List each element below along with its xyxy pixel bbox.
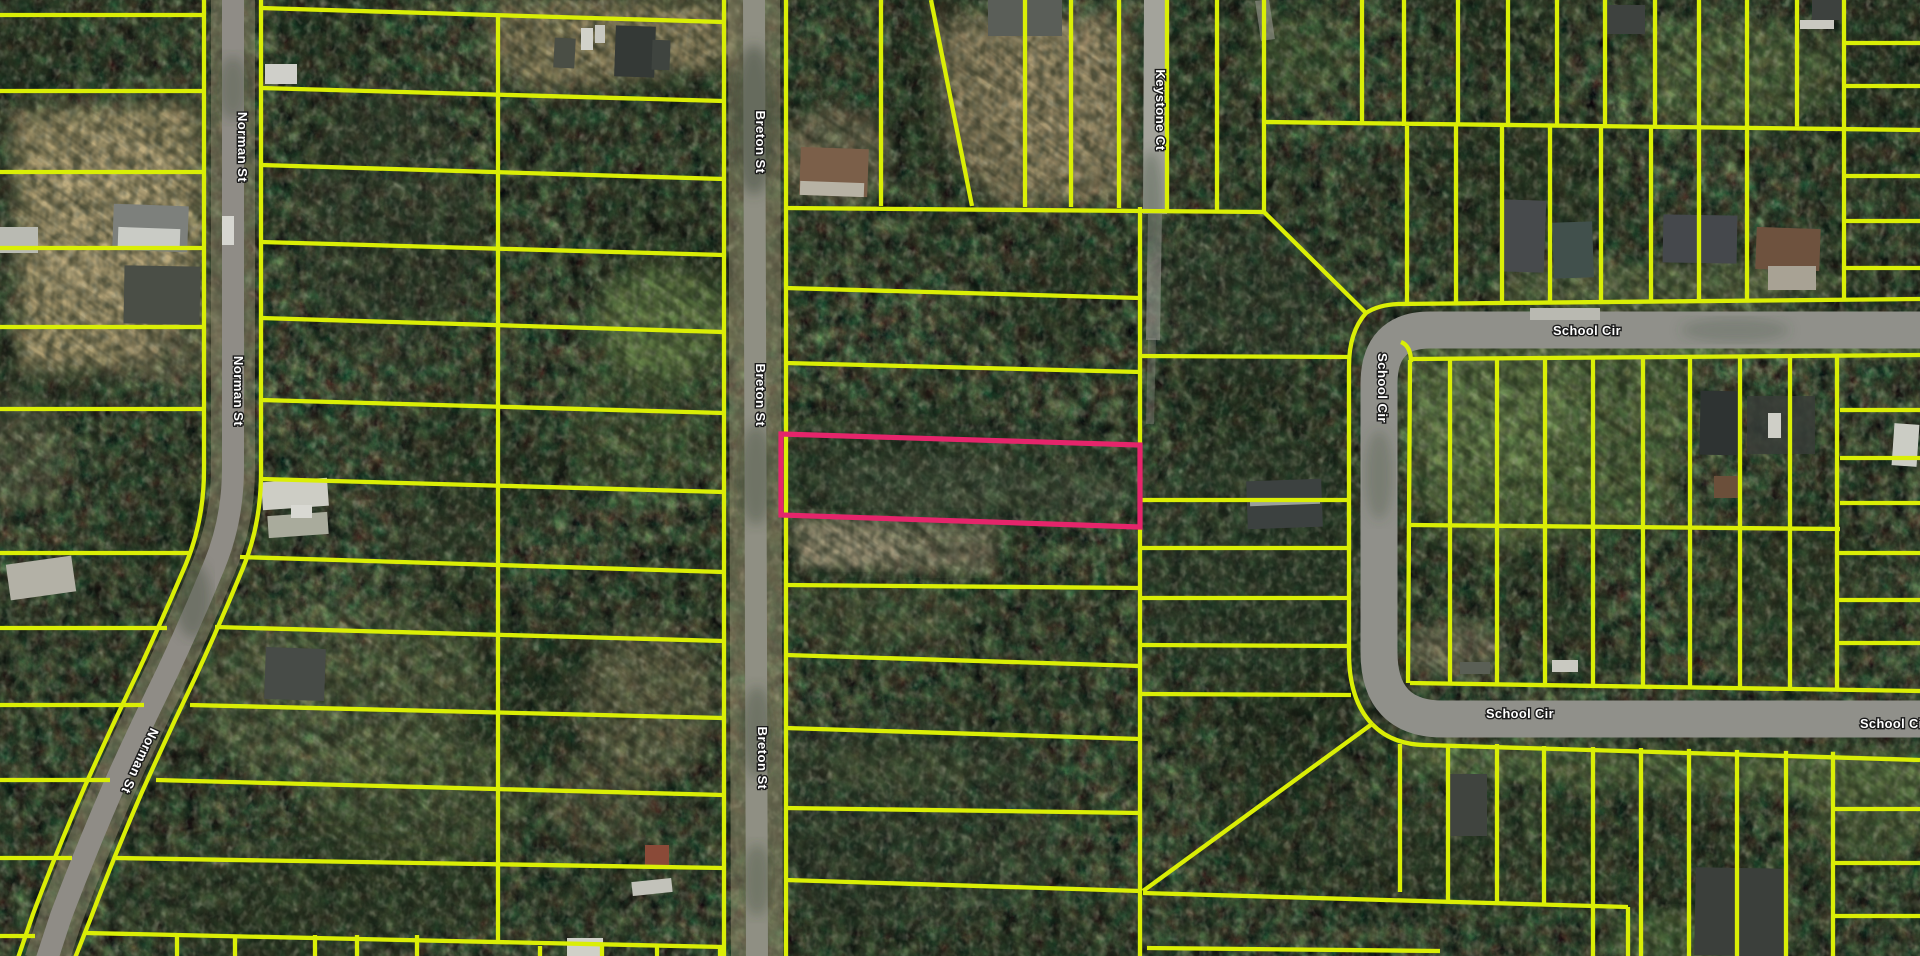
svg-text:Breton St: Breton St bbox=[753, 364, 768, 427]
svg-text:School Cir: School Cir bbox=[1486, 706, 1554, 721]
svg-text:School Cir: School Cir bbox=[1375, 353, 1390, 423]
svg-text:Norman St: Norman St bbox=[235, 112, 250, 182]
svg-text:School Cir: School Cir bbox=[1860, 716, 1920, 731]
svg-text:School Cir: School Cir bbox=[1553, 323, 1621, 338]
svg-text:Norman St: Norman St bbox=[231, 356, 246, 426]
svg-text:Breton St: Breton St bbox=[755, 727, 770, 790]
svg-text:Breton St: Breton St bbox=[753, 111, 768, 174]
svg-text:Keystone Ct: Keystone Ct bbox=[1153, 69, 1168, 151]
